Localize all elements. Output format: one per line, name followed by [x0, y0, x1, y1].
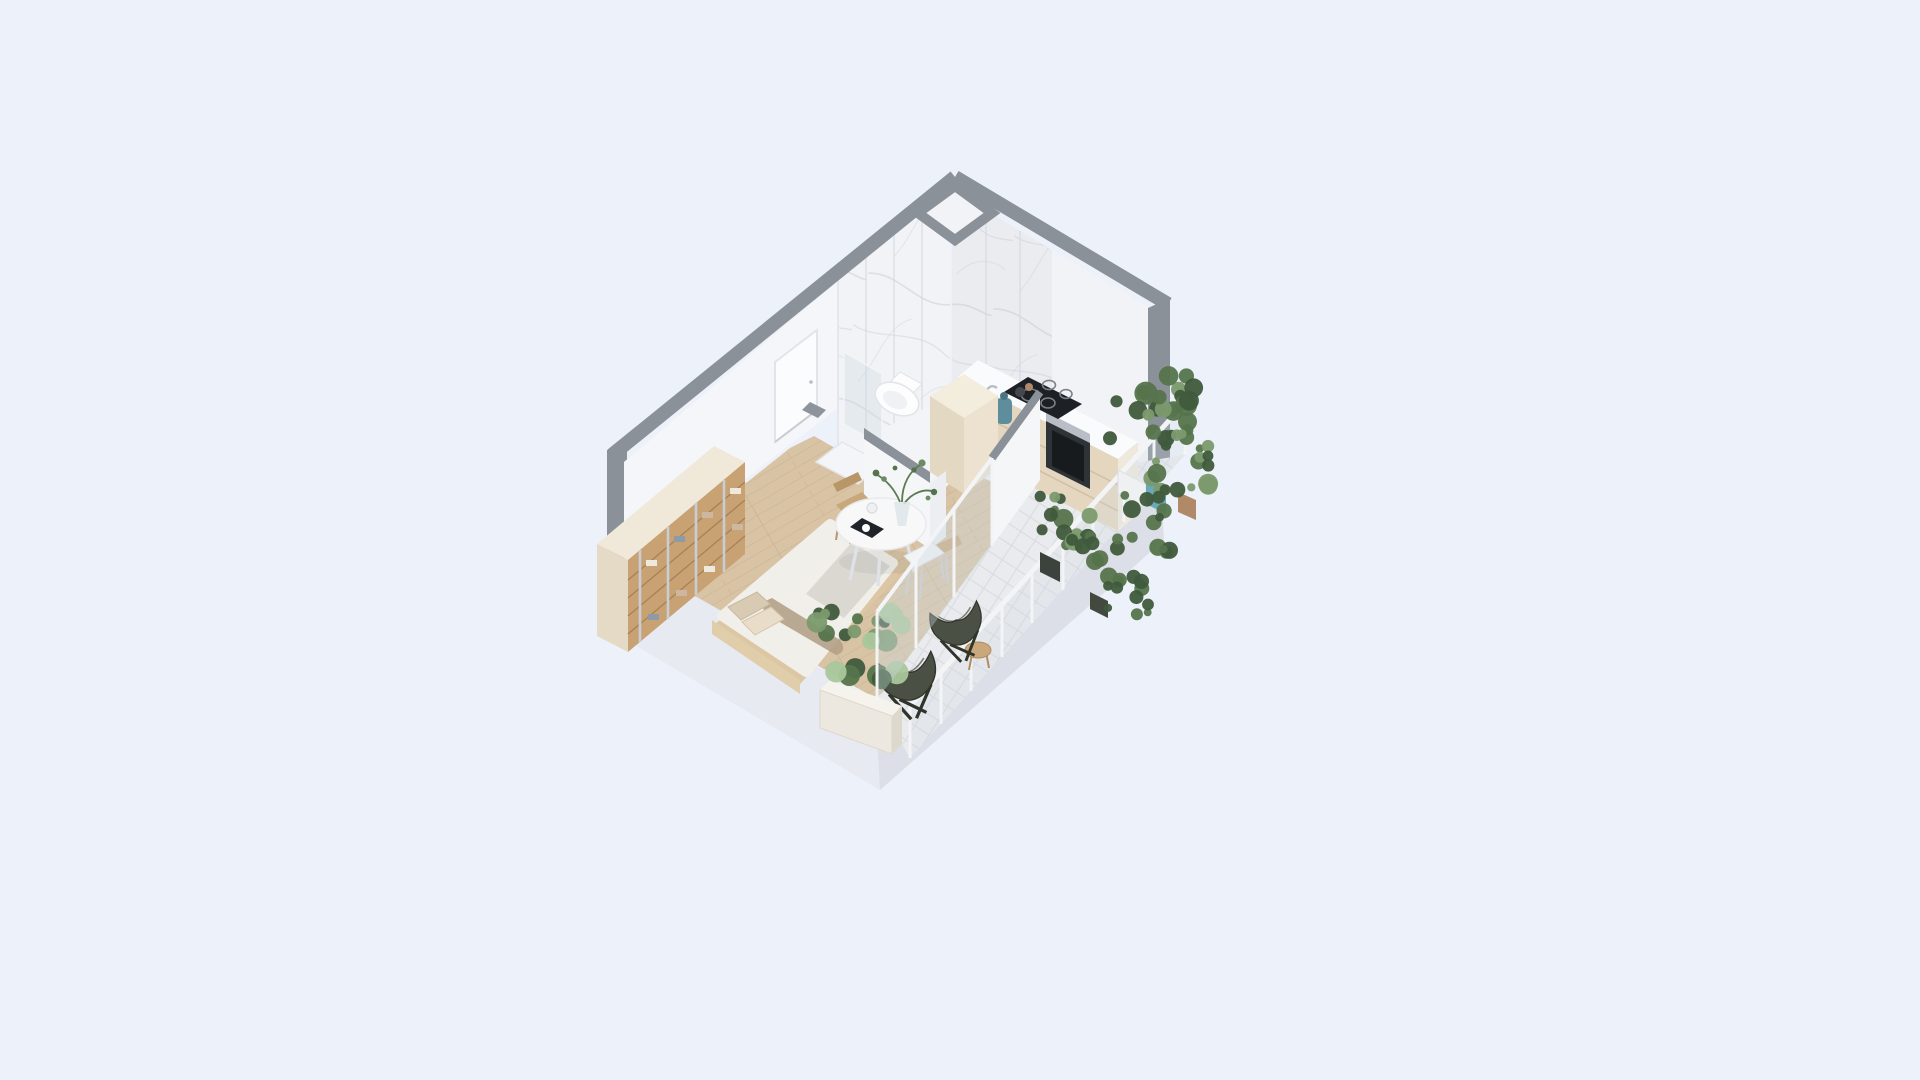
glass-cup: [867, 503, 877, 513]
door-handle: [809, 380, 813, 384]
counter-jar-dark: [1015, 387, 1025, 397]
counter-jar-terracotta: [1025, 383, 1033, 391]
apartment-isometric-render: [0, 0, 1920, 1080]
dining-table-top: [836, 498, 926, 550]
screenshot-canvas: [0, 0, 1920, 1080]
carafe-lid: [1000, 392, 1008, 400]
teal-carafe: [996, 398, 1012, 424]
tablet-logo-dot: [862, 524, 870, 532]
wardrobe-side: [597, 544, 628, 652]
